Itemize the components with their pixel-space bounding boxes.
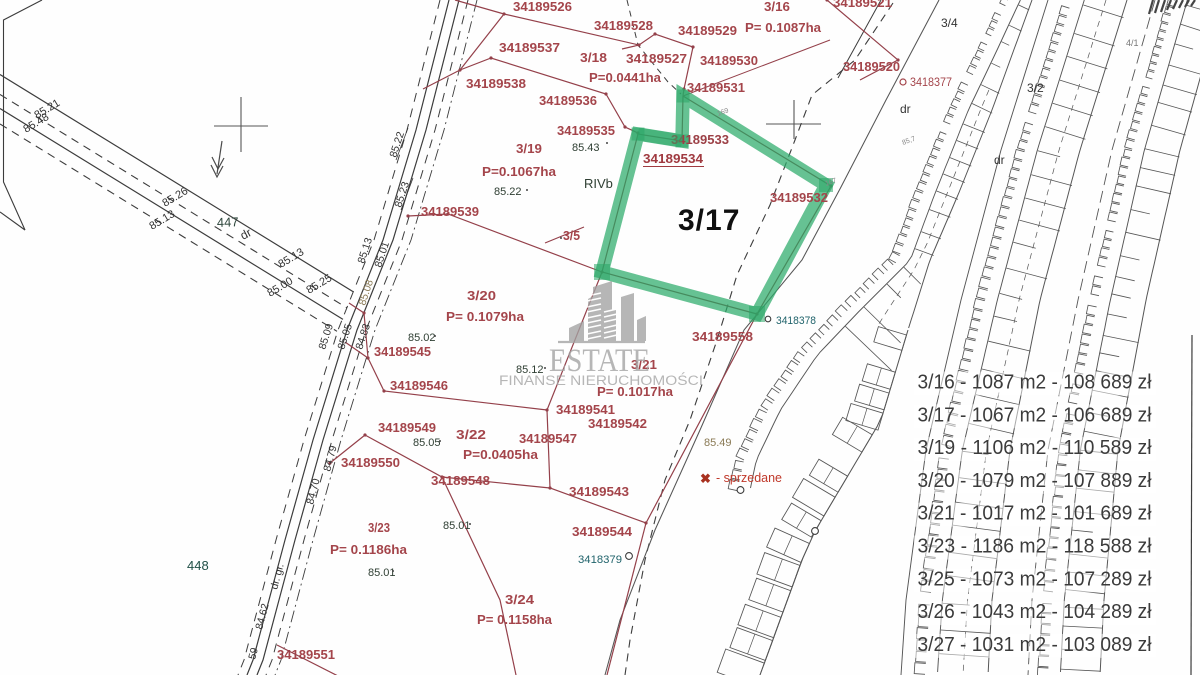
svg-text:P=0.1067ha: P=0.1067ha	[482, 165, 557, 179]
svg-text:34189543: 34189543	[569, 485, 629, 499]
svg-text:P= 0.1186ha: P= 0.1186ha	[330, 543, 408, 557]
svg-text:P= 0.1158ha: P= 0.1158ha	[477, 613, 553, 627]
svg-text:3418377: 3418377	[910, 77, 952, 89]
svg-text:34189539: 34189539	[421, 205, 479, 219]
svg-text:3/20: 3/20	[467, 289, 496, 303]
svg-text:448: 448	[187, 558, 209, 573]
svg-text:34189535: 34189535	[557, 124, 615, 138]
svg-text:3/24: 3/24	[505, 593, 534, 607]
svg-text:85.05: 85.05	[413, 437, 441, 449]
svg-text:85.02: 85.02	[408, 332, 436, 344]
svg-text:34189547: 34189547	[519, 432, 577, 446]
svg-text:3/17: 3/17	[678, 204, 740, 237]
svg-text:85.22: 85.22	[494, 186, 522, 198]
svg-text:85.01: 85.01	[443, 520, 471, 532]
svg-text:3/20 - 1079 m2 - 107 889 zł: 3/20 - 1079 m2 - 107 889 zł	[918, 470, 1153, 492]
svg-text:34189538: 34189538	[466, 77, 526, 91]
svg-text:34189526: 34189526	[513, 0, 572, 14]
svg-text:3/16: 3/16	[764, 0, 790, 14]
svg-text:34189531: 34189531	[687, 81, 745, 95]
svg-text:3/23 - 1186 m2 - 118 588 zł: 3/23 - 1186 m2 - 118 588 zł	[918, 536, 1153, 558]
svg-text:3/5: 3/5	[563, 229, 580, 243]
svg-text:3418379: 3418379	[578, 554, 622, 566]
svg-text:3/2: 3/2	[1027, 81, 1044, 95]
svg-text:34189520: 34189520	[843, 60, 900, 74]
svg-text:34189542: 34189542	[588, 417, 647, 431]
svg-text:3/18: 3/18	[580, 51, 607, 65]
svg-text:FINANSE NIERUCHOMOŚCI: FINANSE NIERUCHOMOŚCI	[499, 373, 703, 388]
svg-text:34189534: 34189534	[643, 152, 703, 166]
svg-text:3/25 - 1073 m2 - 107 289 zł: 3/25 - 1073 m2 - 107 289 zł	[918, 568, 1153, 590]
svg-text:34189521: 34189521	[833, 0, 892, 10]
svg-text:34189527: 34189527	[626, 52, 687, 66]
svg-text:3/4: 3/4	[941, 16, 958, 30]
svg-text:85.49: 85.49	[704, 437, 732, 449]
svg-text:4/1: 4/1	[1126, 38, 1139, 48]
svg-text:34189549: 34189549	[378, 421, 436, 435]
svg-text:3/19 - 1106 m2 - 110 589 zł: 3/19 - 1106 m2 - 110 589 zł	[918, 437, 1153, 459]
svg-text:34189545: 34189545	[374, 345, 431, 359]
svg-text:34189537: 34189537	[499, 41, 560, 55]
svg-text:34189546: 34189546	[390, 379, 448, 393]
svg-text:34189548: 34189548	[431, 474, 490, 488]
svg-text:P= 0.1079ha: P= 0.1079ha	[446, 310, 525, 324]
svg-text:3/19: 3/19	[516, 142, 542, 156]
svg-text:447: 447	[217, 214, 239, 230]
svg-text:3/26 - 1043 m2 - 104 289 zł: 3/26 - 1043 m2 - 104 289 zł	[918, 601, 1153, 623]
svg-text:3/22: 3/22	[456, 428, 486, 442]
svg-text:34189536: 34189536	[539, 94, 597, 108]
svg-text:RIVb: RIVb	[584, 176, 613, 191]
svg-text:P=0.0405ha: P=0.0405ha	[463, 448, 539, 462]
svg-text:P= 0.1087ha: P= 0.1087ha	[745, 21, 822, 35]
svg-text:34189528: 34189528	[594, 19, 653, 33]
svg-text:34189541: 34189541	[556, 403, 615, 417]
svg-text:✖: ✖	[700, 471, 711, 486]
svg-text:3/21 - 1017 m2 - 101 689 zł: 3/21 - 1017 m2 - 101 689 zł	[918, 503, 1153, 525]
svg-text:34189558: 34189558	[692, 330, 753, 344]
svg-text:3/16 - 1087 m2 - 108 689 zł: 3/16 - 1087 m2 - 108 689 zł	[918, 372, 1153, 394]
svg-text:3/17 - 1067 m2 - 106 689 zł: 3/17 - 1067 m2 - 106 689 zł	[918, 404, 1153, 426]
svg-text:dr: dr	[900, 102, 911, 116]
svg-text:3/27 - 1031 m2 - 103 089 zł: 3/27 - 1031 m2 - 103 089 zł	[918, 634, 1153, 656]
svg-text:34189532: 34189532	[770, 191, 828, 205]
svg-text:dr: dr	[994, 153, 1005, 167]
svg-text:85.43: 85.43	[572, 142, 600, 154]
svg-text:34189529: 34189529	[678, 24, 737, 38]
svg-text:85.01: 85.01	[368, 567, 396, 579]
svg-text:3/23: 3/23	[368, 521, 390, 535]
svg-text:34189530: 34189530	[700, 54, 758, 68]
svg-text:3418378: 3418378	[776, 315, 816, 327]
svg-text:34189544: 34189544	[572, 525, 632, 539]
svg-text:- sprzedane: - sprzedane	[716, 471, 782, 485]
svg-text:P=0.0441ha: P=0.0441ha	[589, 71, 662, 85]
svg-text:34189550: 34189550	[341, 456, 400, 470]
